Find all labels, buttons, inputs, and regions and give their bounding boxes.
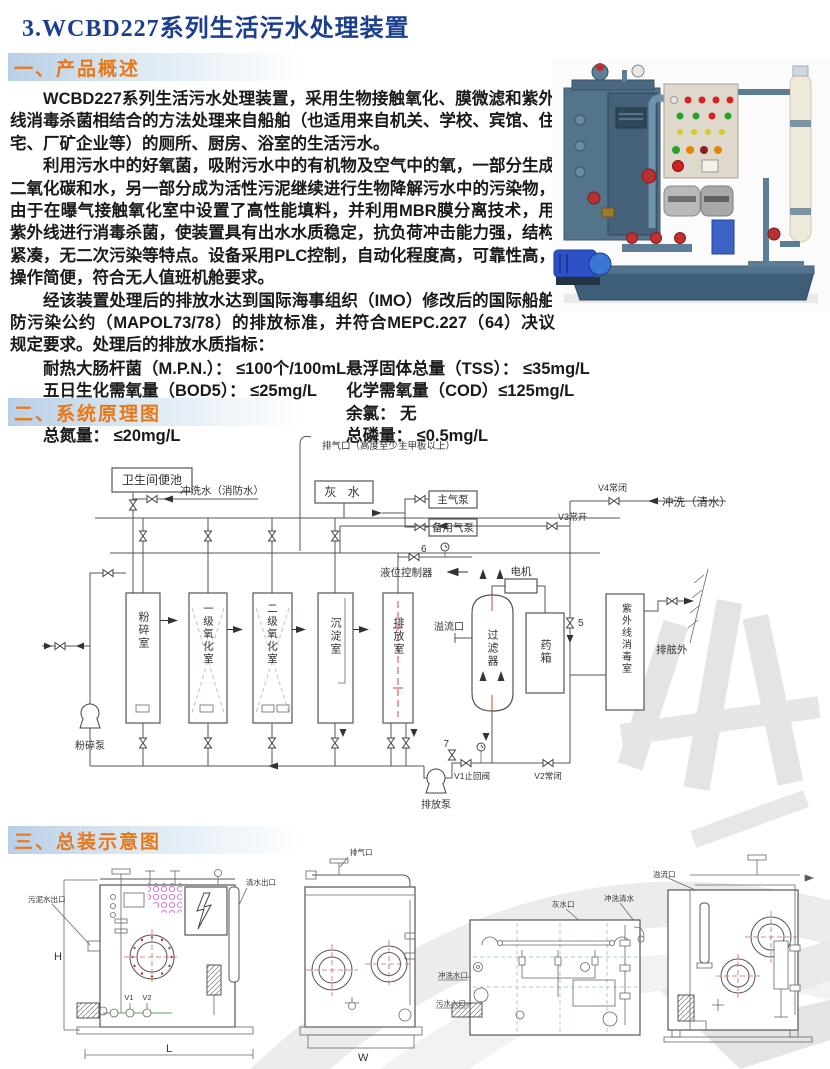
overflow-label: 溢流口	[434, 620, 464, 633]
section2-label: 二、系统原理图	[8, 399, 161, 426]
backup-air-pump-label: 备用气泵	[432, 521, 474, 534]
dosing-pump-front	[207, 965, 221, 995]
red-valve-wheel	[642, 169, 656, 183]
air-pump-group: 主气泵 备用气泵	[372, 491, 477, 536]
control-panel	[664, 84, 738, 178]
valve-6-number: 6	[421, 544, 427, 555]
control-box-lightning	[185, 887, 227, 935]
tank-dis-label: 排放室	[392, 616, 405, 656]
flush-clean-label: 冲洗（清水）	[662, 495, 731, 509]
hull-hatch	[688, 569, 708, 643]
tank-crush: 粉碎室	[126, 593, 160, 723]
uv-chamber: 紫外线消毒室 排舷外	[570, 569, 708, 710]
flush-clean-line: V4常闭 冲洗（清水）	[570, 482, 731, 763]
tank-oxidation-2: 二级氧化室	[253, 593, 292, 723]
assembly-side-view: 排气口	[300, 847, 422, 1064]
flush-fire-label: 冲洗水（消防水）	[180, 484, 264, 497]
vent-label: 排气口（高度至少主甲板以上）	[322, 440, 455, 452]
grey-water-label: 灰 水	[324, 485, 363, 499]
grey-water-port-label: 灰水口	[552, 899, 575, 909]
assembly-side-view-2: 溢流口	[653, 855, 813, 1042]
overboard-label: 排舷外	[656, 643, 688, 656]
tank-crush-label: 粉碎室	[137, 611, 150, 650]
crush-pump: 粉碎泵	[42, 570, 126, 767]
overview-paragraph-3: 经该装置处理后的排放水达到国际海事组织（IMO）修改后的国际船舶防污染公约（MA…	[10, 290, 555, 357]
manifold-valves	[622, 233, 692, 253]
indicator-mpn: 耐热大肠杆菌（M.P.N.）： ≤100个/100mL	[43, 358, 346, 380]
uv-label: 紫外线消毒室	[620, 603, 632, 675]
membrane-module	[790, 66, 811, 242]
tank-ox2-label: 二级氧化室	[266, 603, 278, 666]
overview-paragraph-2: 利用污水中的好氧菌，吸附污水中的有机物及空气中的氧，一部分生成二氧化碳和水，另一…	[10, 155, 555, 289]
drain-manifold	[90, 723, 424, 770]
section-heading-overview: 一、产品概述	[8, 53, 318, 81]
overflow-port-label: 溢流口	[653, 869, 676, 879]
main-air-pump-label: 主气泵	[437, 493, 469, 506]
tank-oxidation-1: 一级氧化室	[189, 593, 227, 723]
assembly-front-view: H L 污泥水出口	[28, 869, 276, 1059]
tank-feed-drops	[140, 518, 399, 593]
valve-5: 5	[567, 618, 585, 643]
toilet-label: 卫生间便池	[122, 473, 182, 487]
v4-label: V4常闭	[598, 482, 627, 493]
filter-label: 过滤器	[486, 629, 499, 668]
machine-illustration	[552, 58, 830, 312]
assembly-drawings: H L 污泥水出口	[0, 845, 830, 1069]
motor-label: 电机	[511, 565, 532, 578]
v1-front-label: V1	[124, 993, 133, 1002]
assembly-top-view: 灰水口 冲洗清水	[452, 893, 644, 1035]
clean-water-outlet-label: 清水出口	[246, 877, 276, 887]
membrane-tube-side	[700, 903, 709, 963]
grey-water-unit: 灰 水	[315, 481, 373, 518]
red-valve-wheel	[588, 192, 600, 204]
valve-7-number: 7	[443, 739, 449, 750]
overflow-port: 溢流口	[434, 620, 472, 643]
dim-l-label: L	[166, 1043, 172, 1055]
system-schematic-diagram: 排气口（高度至少主甲板以上） 卫生间便池 冲洗水（消防水） 灰 水	[0, 433, 830, 823]
v2-front-label: V2	[142, 993, 151, 1002]
tank-sedimentation: 沉淀室	[318, 593, 353, 723]
overview-paragraph-1: WCBD227系列生活污水处理装置，采用生物接触氧化、膜微滤和紫外线消毒杀菌相结…	[10, 88, 555, 155]
tank-sed-label: 沉淀室	[329, 617, 342, 656]
membrane-tube-front	[229, 887, 239, 982]
side2-pump	[678, 995, 694, 1021]
air-blowers	[664, 186, 733, 216]
indicator-tss: 悬浮固体总量（TSS）： ≤35mg/L	[346, 358, 590, 380]
section-heading-schematic: 二、系统原理图	[8, 398, 318, 426]
v2-label: V2常闭	[534, 771, 561, 781]
indicator-cod: 化学需氧量（COD）≤125mg/L	[346, 380, 590, 402]
red-valve-wheel	[768, 228, 780, 240]
filter-unit: 过滤器	[472, 595, 513, 711]
front-pump	[77, 1003, 99, 1018]
vent-port-label: 排气口	[350, 847, 373, 857]
level-controller-label: 液位控制器	[380, 566, 433, 579]
discharge-pump-label: 排放泵	[421, 798, 451, 811]
dosing-pump	[712, 220, 734, 254]
catalog-page: 3.WCBD227系列生活污水处理装置 一、产品概述 WCBD227系列生活污水…	[0, 0, 830, 1069]
flush-clean-water-label: 冲洗清水	[604, 893, 634, 903]
level-controller-group: 6 液位控制器	[380, 543, 472, 579]
dim-w-label: W	[358, 1052, 369, 1064]
discharge-pump-group: 排放泵 7 V1止回阀 V2常闭	[421, 711, 570, 811]
dim-h-label: H	[54, 951, 62, 963]
page-title: 3.WCBD227系列生活污水处理装置	[22, 8, 410, 43]
indicator-residual-chlorine: 余氯： 无	[346, 403, 590, 425]
chem-box-label: 药箱	[539, 639, 552, 665]
valve-5-number: 5	[578, 618, 584, 629]
flush-port-label: 冲洗水口	[438, 970, 468, 980]
overview-text: WCBD227系列生活污水处理装置，采用生物接触氧化、膜微滤和紫外线消毒杀菌相结…	[10, 88, 555, 448]
chemical-box: 药箱	[526, 613, 564, 693]
sludge-outlet-label: 污泥水出口	[28, 894, 66, 904]
v1-label: V1止回阀	[454, 771, 490, 781]
product-photo	[552, 58, 830, 312]
section1-label: 一、产品概述	[8, 54, 140, 81]
tank-ox1-label: 一级氧化室	[202, 603, 214, 666]
v3-label: V3常开	[558, 511, 587, 522]
brass-valve	[602, 208, 614, 217]
tank-discharge: 排放室	[383, 593, 413, 723]
top-view-motor	[452, 1003, 482, 1017]
